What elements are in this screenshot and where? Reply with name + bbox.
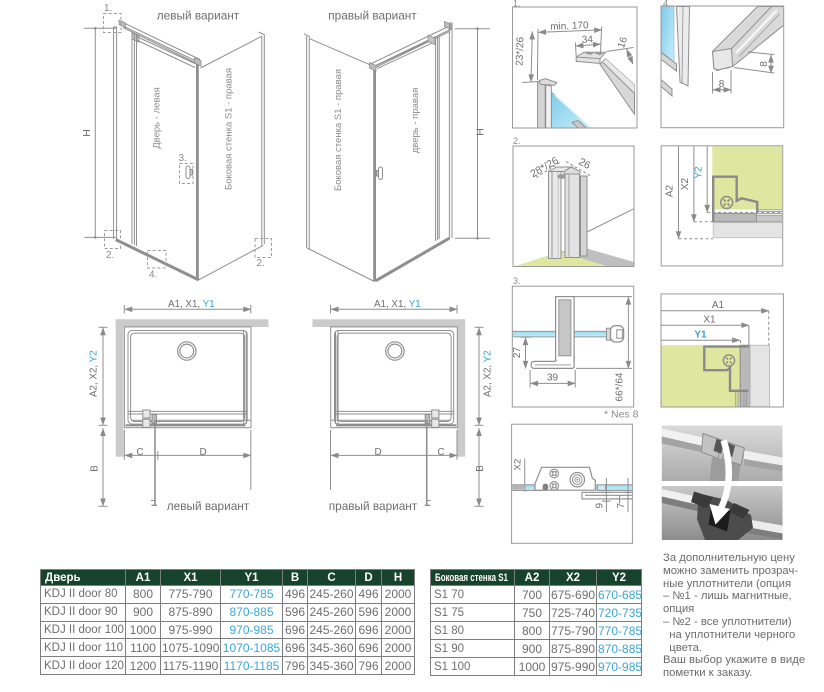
svg-text:C: C (136, 447, 143, 458)
svg-text:7: 7 (616, 503, 627, 509)
svg-text:H: H (475, 128, 487, 136)
svg-text:1.: 1. (104, 3, 112, 14)
svg-text:левый вариант: левый вариант (167, 499, 250, 513)
svg-text:A1: A1 (712, 300, 725, 311)
svg-text:39: 39 (547, 373, 559, 384)
svg-text:X2: X2 (513, 459, 524, 471)
svg-text:A2, X2, Y2: A2, X2, Y2 (483, 350, 494, 397)
svg-text:3.: 3. (513, 276, 521, 286)
svg-text:Боковая стенка S1 - правая: Боковая стенка S1 - правая (224, 68, 235, 190)
svg-text:2.: 2. (257, 258, 265, 269)
svg-text:A2, X2, Y2: A2, X2, Y2 (89, 350, 100, 397)
svg-text:1.: 1. (513, 0, 521, 9)
svg-text:A1, X1, Y1: A1, X1, Y1 (374, 299, 421, 310)
svg-text:26: 26 (576, 156, 592, 172)
svg-text:A2: A2 (665, 184, 676, 197)
svg-text:Дверь - левая: Дверь - левая (152, 87, 163, 149)
svg-text:C: C (437, 447, 444, 458)
svg-text:* Nes 8: * Nes 8 (604, 409, 639, 421)
svg-text:34: 34 (582, 34, 594, 45)
svg-text:дверь - правая: дверь - правая (410, 88, 421, 154)
svg-text:27: 27 (512, 347, 523, 359)
svg-text:2.: 2. (106, 250, 114, 261)
svg-text:A1, X1, Y1: A1, X1, Y1 (168, 299, 215, 310)
svg-text:левый вариант: левый вариант (157, 9, 240, 23)
svg-text:23*/26: 23*/26 (514, 36, 526, 66)
svg-text:правый вариант: правый вариант (328, 9, 417, 23)
svg-text:9: 9 (595, 503, 606, 509)
svg-text:66*/64: 66*/64 (615, 372, 626, 401)
svg-text:X1: X1 (703, 314, 716, 325)
svg-text:Y2: Y2 (694, 166, 705, 179)
svg-text:16: 16 (616, 35, 630, 49)
svg-text:4.: 4. (149, 270, 157, 281)
svg-text:D: D (199, 447, 206, 458)
svg-text:H: H (81, 129, 93, 137)
svg-text:3.: 3. (179, 153, 187, 164)
svg-text:D: D (374, 447, 381, 458)
svg-text:8: 8 (719, 79, 725, 90)
svg-text:правый вариант: правый вариант (329, 499, 418, 513)
svg-text:2.: 2. (513, 136, 521, 146)
svg-text:B: B (475, 465, 486, 472)
svg-text:min. 170: min. 170 (550, 20, 589, 33)
svg-text:X2: X2 (680, 177, 691, 190)
svg-text:Боковая стенка S1 - правая: Боковая стенка S1 - правая (333, 69, 344, 191)
svg-text:Y1: Y1 (694, 329, 707, 340)
svg-text:B: B (90, 465, 101, 472)
svg-text:8: 8 (759, 61, 770, 67)
